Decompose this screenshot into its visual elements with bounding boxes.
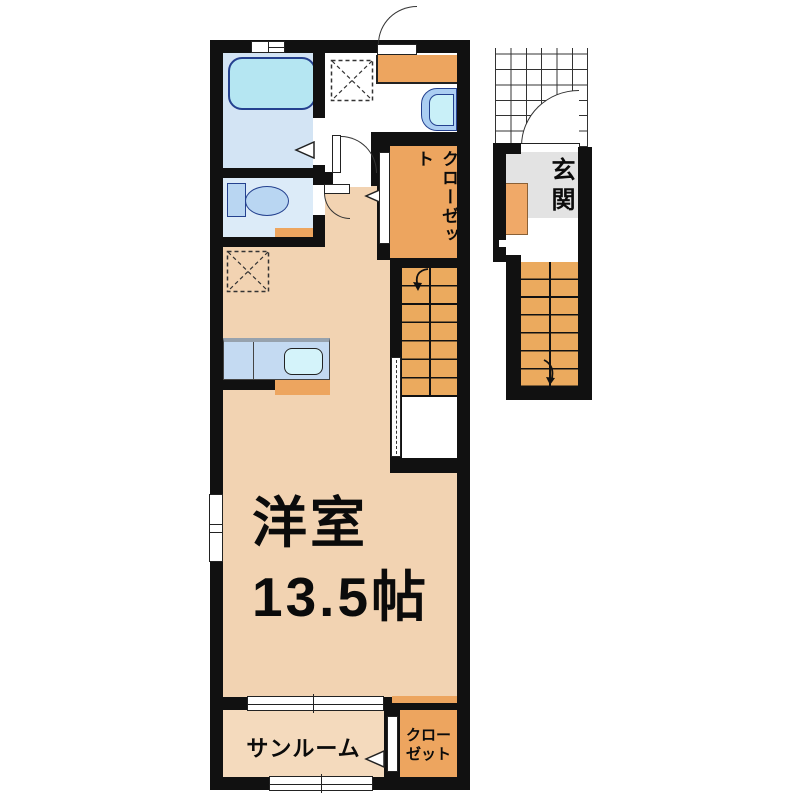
floor-pan-icon	[226, 250, 270, 293]
toilet-counter-strip	[275, 228, 313, 237]
window-line	[210, 524, 222, 525]
kitchen-counter	[223, 338, 330, 380]
entrance-label: 玄関	[543, 157, 578, 217]
main-room-label: 洋室 13.5帖	[252, 486, 429, 634]
lower-closet-label: クロー ゼット	[400, 726, 457, 764]
wall-understair-bottom	[390, 458, 457, 473]
window-line	[268, 47, 284, 48]
upper-closet-label: クローゼット	[411, 150, 461, 256]
washbasin-bowl	[429, 94, 454, 126]
lower-closet-top-strip	[392, 696, 457, 703]
bath-door-triangle-icon	[293, 141, 315, 159]
washer-pan-icon	[330, 59, 374, 102]
sliding-door-line	[248, 704, 383, 705]
top-door-leaf	[377, 44, 417, 55]
upper-closet-opening	[379, 152, 390, 244]
toilet-bowl	[245, 186, 289, 216]
wall-toilet-bottom	[223, 237, 325, 247]
floor-plan-canvas: 洋室 13.5帖 クローゼット 玄関 サンルーム クロー ゼット	[0, 0, 800, 800]
entrance-wall-left-lower	[506, 255, 521, 400]
stair-sliding-door-dash	[396, 360, 397, 454]
stair-sliding-door	[391, 357, 401, 457]
washroom-counter	[376, 55, 457, 84]
window-line	[210, 532, 222, 533]
wall-top	[210, 40, 470, 53]
wall-left	[210, 40, 223, 790]
left-wall-window	[209, 494, 223, 562]
bathtub	[228, 57, 316, 110]
bathroom-window	[251, 41, 285, 53]
kitchen-base-orange	[275, 380, 330, 395]
main-room-size: 13.5帖	[252, 560, 429, 634]
sliding-door-tick	[313, 694, 314, 713]
understair-floor	[402, 397, 457, 458]
lower-closet-label-line2: ゼット	[400, 745, 457, 764]
wall-closet-top	[390, 132, 457, 146]
lower-closet-label-line1: クロー	[400, 726, 457, 745]
entrance-wall-right	[578, 147, 592, 400]
sunroom-label: サンルーム	[223, 731, 384, 763]
kitchen-counter-divider	[253, 342, 254, 379]
entrance-wall-bottom	[506, 387, 592, 400]
wall-closet-bottom	[390, 258, 457, 268]
stair-arrow-icon	[408, 266, 434, 292]
toilet-door-leaf	[324, 184, 350, 194]
main-room-name: 洋室	[252, 486, 429, 560]
washroom-door-leaf	[332, 135, 341, 173]
entrance-wall-notch	[499, 240, 516, 247]
wall-bath-toilet	[223, 168, 325, 178]
top-door-swing-arc	[378, 6, 417, 44]
lower-closet-opening	[387, 716, 398, 772]
main-room-sliding-door	[247, 696, 384, 711]
kitchen-sink	[284, 348, 323, 375]
toilet-tank	[227, 183, 246, 217]
entrance-stair-arrow-icon	[536, 358, 562, 386]
kitchen-base-black	[223, 380, 275, 390]
sliding-door-tick	[321, 774, 322, 793]
sunroom-window	[269, 776, 373, 791]
